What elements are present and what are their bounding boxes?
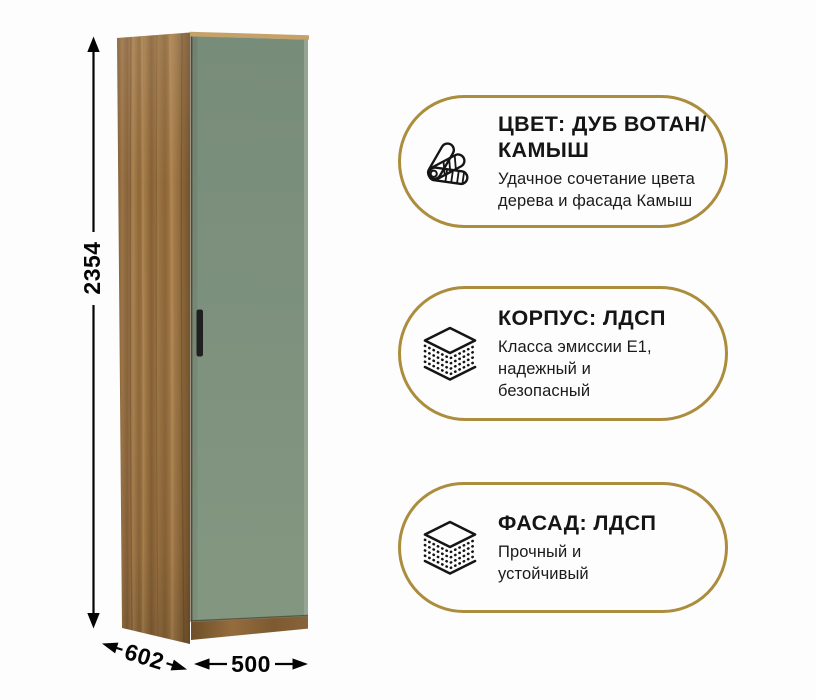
width-dimension-arrow: 500	[194, 651, 308, 677]
badge-subtitle: Удачное сочетание цвета дерева и фасада …	[498, 168, 707, 212]
wardrobe-handle	[197, 310, 204, 357]
feature-badge-korpus: КОРПУС: ЛДСП Класса эмиссии Е1, надежный…	[398, 286, 728, 421]
wardrobe-door-edge	[304, 40, 308, 617]
wardrobe-body	[117, 32, 309, 644]
badge-title: ФАСАД: ЛДСП	[498, 510, 707, 536]
feature-badge-color: ЦВЕТ: ДУБ ВОТАН/ КАМЫШ Удачное сочетание…	[398, 95, 728, 228]
height-dimension-arrow: 2354	[79, 37, 105, 629]
depth-dimension-label: 602	[122, 638, 168, 675]
height-dimension-label: 2354	[79, 241, 105, 294]
product-infographic: 2354 602 500	[0, 0, 816, 700]
badge-subtitle: Прочный и устойчивый	[498, 541, 707, 585]
badge-subtitle: Класса эмиссии Е1, надежный и безопасный	[498, 336, 707, 402]
wardrobe-render: 2354 602 500	[0, 0, 380, 700]
color-swatch-fan-icon	[401, 129, 498, 195]
badge-title: ЦВЕТ: ДУБ ВОТАН/ КАМЫШ	[498, 111, 707, 163]
layers-icon	[401, 325, 498, 383]
layers-icon	[401, 519, 498, 577]
feature-badge-fasad: ФАСАД: ЛДСП Прочный и устойчивый	[398, 482, 728, 613]
width-dimension-label: 500	[231, 651, 271, 677]
wardrobe-door	[191, 36, 309, 621]
badge-title: КОРПУС: ЛДСП	[498, 305, 707, 331]
